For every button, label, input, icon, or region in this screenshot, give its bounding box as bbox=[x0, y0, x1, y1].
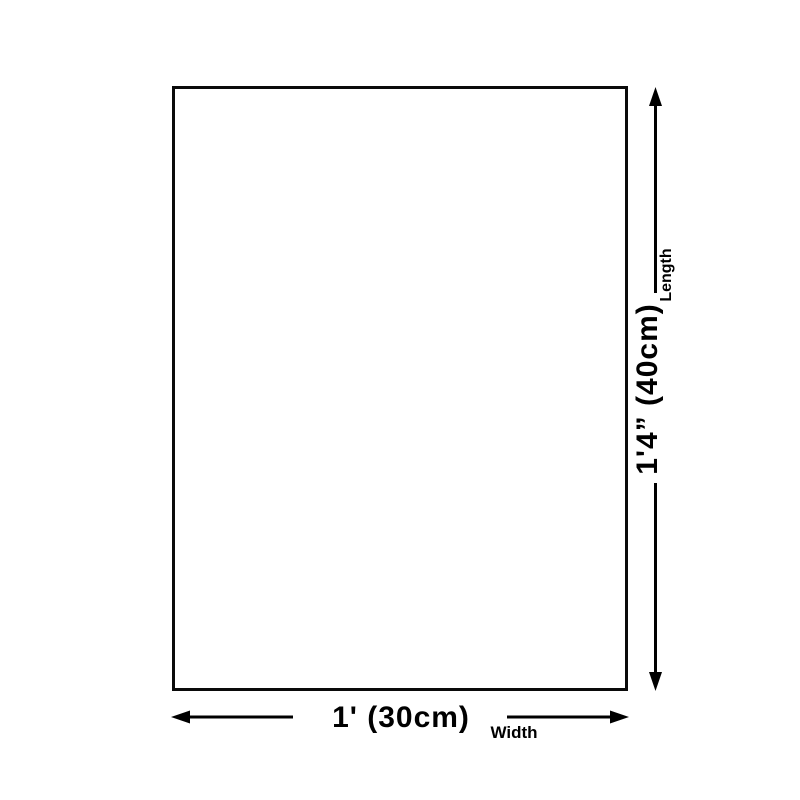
width-dimension-label: Width bbox=[474, 723, 554, 743]
product-outline-rectangle bbox=[172, 86, 628, 691]
length-dimension-label: Length bbox=[657, 235, 677, 315]
length-dimension-value: 1'4” (40cm) bbox=[627, 289, 669, 489]
size-diagram: 1'4” (40cm) Length 1' (30cm) Width bbox=[0, 0, 800, 800]
width-dimension-value: 1' (30cm) bbox=[301, 699, 501, 737]
arrow-down-icon bbox=[648, 483, 663, 691]
arrow-left-icon bbox=[171, 710, 293, 724]
arrow-right-icon bbox=[507, 710, 629, 724]
